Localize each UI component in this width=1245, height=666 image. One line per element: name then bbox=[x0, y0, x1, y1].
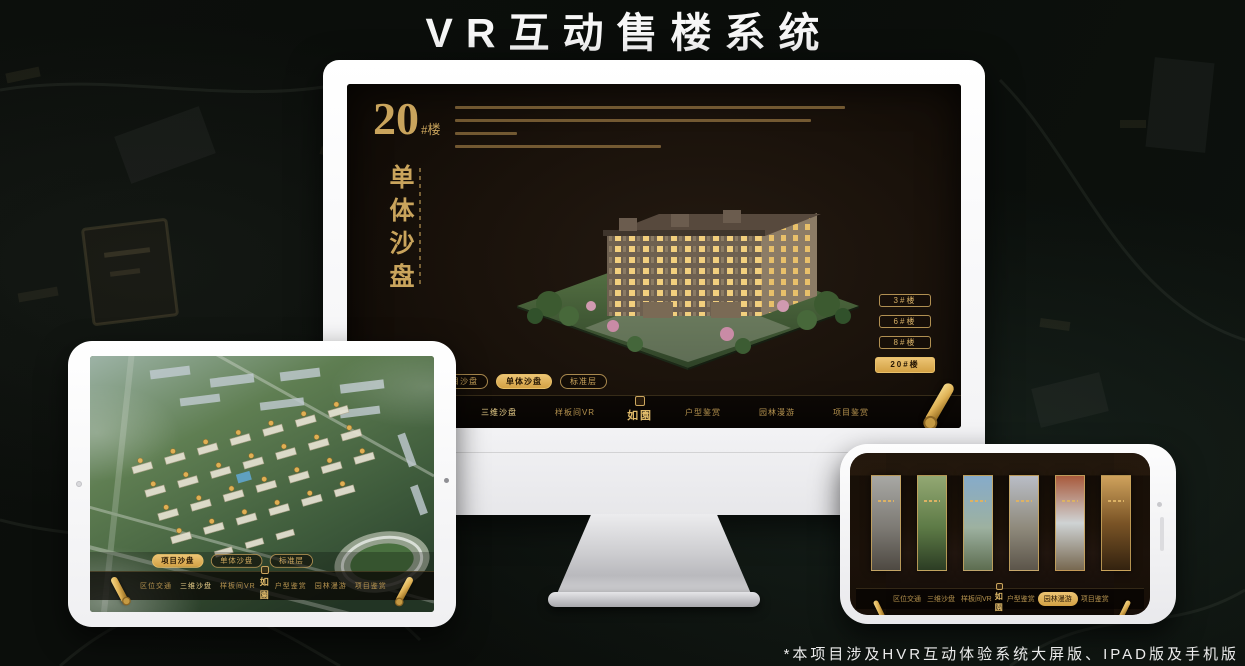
project-logo: 如園 bbox=[995, 583, 1004, 613]
logo-text: 如園 bbox=[260, 575, 271, 601]
nav-model-room-vr[interactable]: 样板间VR bbox=[549, 404, 601, 421]
phone-mockup: 区位交通 三维沙盘 样板间VR 如園 户型鉴赏 园林漫游 项目鉴赏 bbox=[840, 444, 1176, 624]
nav-garden-roam[interactable]: 园林漫游 bbox=[753, 404, 801, 421]
nav-garden-roam[interactable]: 园林漫游 bbox=[1038, 592, 1078, 606]
tablet-navbar: 区位交通 三维沙盘 样板间VR 如園 户型鉴赏 园林漫游 项目鉴赏 bbox=[90, 571, 434, 600]
background-plaque bbox=[82, 219, 177, 325]
project-logo: 如園 bbox=[627, 396, 653, 423]
subtab-standard-floor[interactable]: 标准层 bbox=[560, 374, 607, 389]
nav-model-room-vr[interactable]: 样板间VR bbox=[958, 592, 995, 606]
scroll-handle-icon bbox=[110, 576, 129, 604]
monitor-subtabs: 项目沙盘 单体沙盘 标准层 bbox=[432, 374, 607, 389]
description-paragraph bbox=[455, 106, 847, 158]
nav-project-view[interactable]: 项目鉴赏 bbox=[351, 578, 391, 594]
tablet-screen: 项目沙盘 单体沙盘 标准层 区位交通 三维沙盘 样板间VR 如園 户型鉴赏 园林… bbox=[90, 356, 434, 612]
subtab-standard-floor[interactable]: 标准层 bbox=[270, 554, 313, 568]
ruyuan-seal-icon bbox=[261, 566, 269, 574]
scene-panel[interactable] bbox=[871, 475, 901, 571]
ruyuan-seal-icon bbox=[635, 396, 645, 406]
monitor-stand-base bbox=[548, 592, 760, 607]
scene-panel[interactable] bbox=[917, 475, 947, 571]
nav-location-traffic[interactable]: 区位交通 bbox=[136, 578, 176, 594]
nav-floorplan-view[interactable]: 户型鉴赏 bbox=[679, 404, 727, 421]
subtab-single-sandbox[interactable]: 单体沙盘 bbox=[211, 554, 263, 568]
monitor-stand bbox=[556, 514, 752, 596]
page-title: VR互动售楼系统 bbox=[413, 0, 833, 59]
logo-text: 如園 bbox=[627, 407, 653, 423]
block-number: 20 bbox=[373, 93, 419, 144]
scene-panel[interactable] bbox=[1009, 475, 1039, 571]
scroll-handle-icon[interactable] bbox=[923, 381, 956, 426]
project-logo: 如園 bbox=[260, 566, 271, 601]
vertical-section-title: 单体沙盘 bbox=[381, 164, 417, 296]
nav-floorplan-view[interactable]: 户型鉴赏 bbox=[271, 578, 311, 594]
nav-project-view[interactable]: 项目鉴赏 bbox=[827, 404, 875, 421]
phone-navbar: 区位交通 三维沙盘 样板间VR 如園 户型鉴赏 园林漫游 项目鉴赏 bbox=[856, 588, 1144, 609]
scene-panel[interactable] bbox=[1101, 475, 1131, 571]
subtab-project-sandbox[interactable]: 项目沙盘 bbox=[152, 554, 204, 568]
phone-screen: 区位交通 三维沙盘 样板间VR 如園 户型鉴赏 园林漫游 项目鉴赏 bbox=[850, 453, 1150, 615]
block-title: 20#楼 bbox=[373, 96, 441, 142]
floor-button-group: 3#楼 6#楼 8#楼 20#楼 bbox=[875, 294, 935, 373]
footnote: *本项目涉及HVR互动体验系统大屏版、IPAD版及手机版 bbox=[784, 643, 1239, 664]
nav-floorplan-view[interactable]: 户型鉴赏 bbox=[1004, 592, 1038, 606]
floor-button-20[interactable]: 20#楼 bbox=[875, 357, 935, 373]
tablet-mockup: 项目沙盘 单体沙盘 标准层 区位交通 三维沙盘 样板间VR 如園 户型鉴赏 园林… bbox=[68, 341, 456, 627]
scene-panel[interactable] bbox=[963, 475, 993, 571]
banner: VR互动售楼系统 bbox=[0, 0, 1245, 58]
nav-3d-sandbox[interactable]: 三维沙盘 bbox=[924, 592, 958, 606]
nav-location-traffic[interactable]: 区位交通 bbox=[890, 592, 924, 606]
floor-button-8[interactable]: 8#楼 bbox=[879, 336, 931, 349]
nav-garden-roam[interactable]: 园林漫游 bbox=[311, 578, 351, 594]
floor-button-3[interactable]: 3#楼 bbox=[879, 294, 931, 307]
scene-panel-carousel bbox=[871, 475, 1131, 571]
nav-model-room-vr[interactable]: 样板间VR bbox=[216, 578, 260, 594]
phone-camera-icon bbox=[1157, 502, 1162, 507]
logo-text: 如園 bbox=[995, 591, 1004, 613]
ruyuan-seal-icon bbox=[996, 583, 1003, 590]
phone-speaker-icon bbox=[1160, 517, 1164, 551]
scroll-handle-icon bbox=[873, 600, 887, 615]
subtab-single-sandbox[interactable]: 单体沙盘 bbox=[496, 374, 552, 389]
nav-3d-sandbox[interactable]: 三维沙盘 bbox=[176, 578, 216, 594]
scroll-handle-icon bbox=[395, 576, 414, 604]
scene-panel[interactable] bbox=[1055, 475, 1085, 571]
promo-poster: VR互动售楼系统 20#楼 单体沙盘 bbox=[0, 0, 1245, 666]
tablet-subtabs: 项目沙盘 单体沙盘 标准层 bbox=[152, 554, 313, 568]
vertical-caption-deco bbox=[419, 168, 421, 288]
tablet-button-icon bbox=[444, 478, 449, 483]
building-model[interactable] bbox=[515, 156, 861, 370]
nav-project-view[interactable]: 项目鉴赏 bbox=[1078, 592, 1112, 606]
tablet-camera-icon bbox=[76, 481, 82, 487]
nav-3d-sandbox[interactable]: 三维沙盘 bbox=[475, 404, 523, 421]
scroll-handle-icon bbox=[1118, 600, 1132, 615]
block-unit: #楼 bbox=[421, 122, 441, 137]
floor-button-6[interactable]: 6#楼 bbox=[879, 315, 931, 328]
